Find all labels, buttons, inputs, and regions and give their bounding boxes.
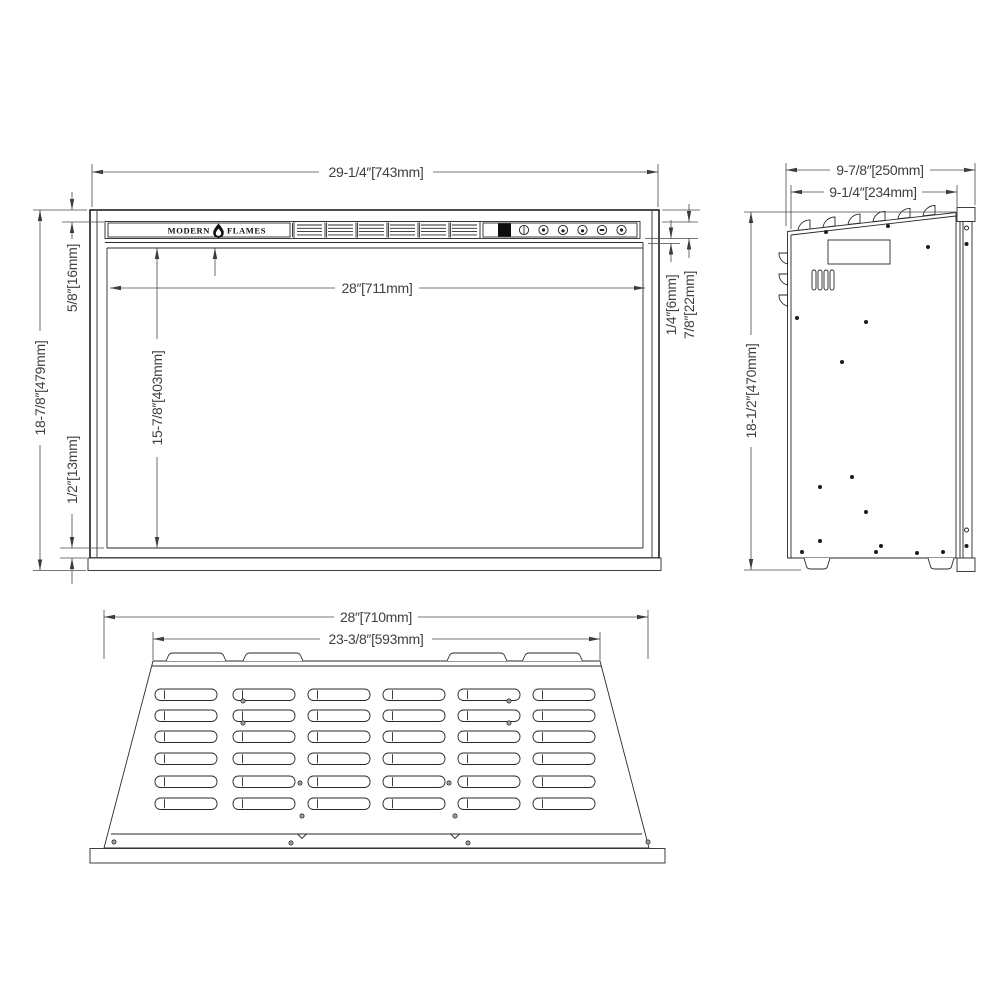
top-front-bar xyxy=(90,849,665,864)
dim-text-top-vent-width: 23-3/8″[593mm] xyxy=(329,631,424,647)
front-control-panel xyxy=(483,223,637,237)
dim-text-front-glass-height: 15-7/8″[403mm] xyxy=(149,351,165,446)
technical-drawing: MODERN FLAMES xyxy=(0,0,1000,1000)
dim-text-side-body-depth: 9-1/4″[234mm] xyxy=(829,184,916,200)
front-view: MODERN FLAMES xyxy=(88,210,661,571)
brand-text-modern: MODERN xyxy=(168,226,211,236)
dim-text-side-overall-depth: 9-7/8″[250mm] xyxy=(836,162,923,178)
dim-front-overall-width: 29-1/4″[743mm] xyxy=(92,164,658,207)
side-feet xyxy=(804,558,954,569)
side-front-flange xyxy=(957,208,975,572)
dim-text-front-overall-width: 29-1/4″[743mm] xyxy=(329,164,424,180)
drawing-sheet: MODERN FLAMES xyxy=(0,0,1000,1000)
dim-text-side-overall-height: 18-1/2″[470mm] xyxy=(743,344,759,439)
display-screen xyxy=(498,224,511,237)
side-access-cutout xyxy=(828,240,890,264)
front-vent-grille xyxy=(294,222,480,239)
dim-text-top-overall-width: 28″[710mm] xyxy=(340,609,412,625)
dim-text-front-trim-gap: 1/4″[6mm] xyxy=(663,275,679,336)
dim-text-front-overall-height: 18-7/8″[479mm] xyxy=(32,341,48,436)
dim-text-front-top-frame: 5/8″[16mm] xyxy=(64,244,80,312)
dimensions-top: 28″[710mm] 23-3/8″[593mm] xyxy=(104,609,648,660)
dim-text-front-control-bar: 7/8″[22mm] xyxy=(681,271,697,339)
side-rear-louvers xyxy=(779,253,788,306)
dim-text-front-glass-width: 28″[711mm] xyxy=(342,280,413,296)
dim-text-front-bottom-frame: 1/2″[13mm] xyxy=(64,436,80,504)
front-outer-frame xyxy=(90,210,659,558)
front-bottom-trim xyxy=(88,558,661,571)
front-top-bar: MODERN FLAMES xyxy=(105,222,640,239)
brand-text-flames: FLAMES xyxy=(227,226,266,236)
top-view xyxy=(90,653,665,863)
side-view xyxy=(779,205,975,571)
top-mounting-tabs xyxy=(166,653,583,661)
